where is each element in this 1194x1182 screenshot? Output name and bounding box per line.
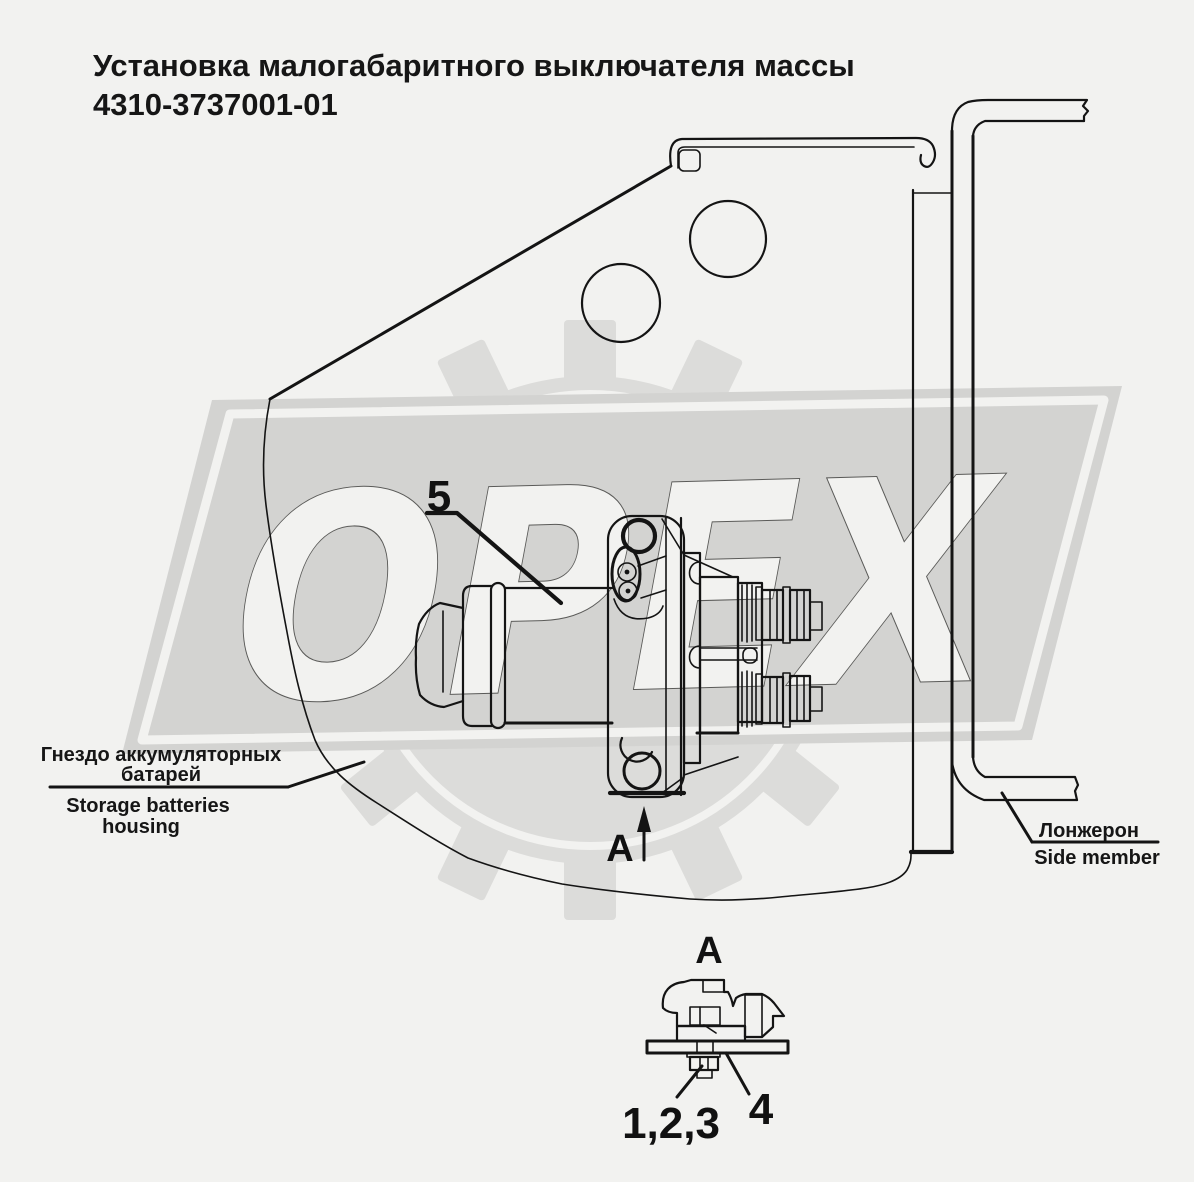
detail-view-letter: А [695,930,722,972]
label-washer: 4 [749,1085,774,1134]
side-member-label-ru: Лонжерон [1039,820,1139,842]
side-member-callout: Лонжерон Side member [1002,793,1160,869]
housing-label-en-1: Storage batteries [66,795,229,817]
housing-label-ru-2: батарей [121,764,201,786]
detail-view-a: А 1,2,3 4 [622,930,788,1148]
diagram-canvas: ОРЕХ Установка малогабаритного выключате… [0,0,1194,1182]
housing-label-en-2: housing [102,816,180,838]
drawing-number: 4310-3737001-01 [93,87,338,122]
watermark-text: ОРЕХ [202,418,1023,768]
label-fasteners: 1,2,3 [622,1099,720,1148]
detail-clamp-silhouette [663,980,784,1037]
detail-plate [647,1041,788,1053]
detail-base-box [677,1026,745,1041]
label-part5: 5 [427,472,451,521]
housing-label-ru-1: Гнездо аккумуляторных [41,744,281,766]
view-a-letter: А [606,828,633,870]
bracket-hole-upper [690,201,766,277]
watermark-logo-text: ОРЕХ [202,418,1023,768]
side-member-label-en: Side member [1034,847,1160,869]
catalog-diagram-page: ОРЕХ Установка малогабаритного выключате… [0,0,1194,1182]
page-title: Установка малогабаритного выключателя ма… [93,48,855,83]
bracket-hole-lower [582,264,660,342]
leader-washer [726,1053,749,1094]
detail-nut [690,1057,718,1070]
